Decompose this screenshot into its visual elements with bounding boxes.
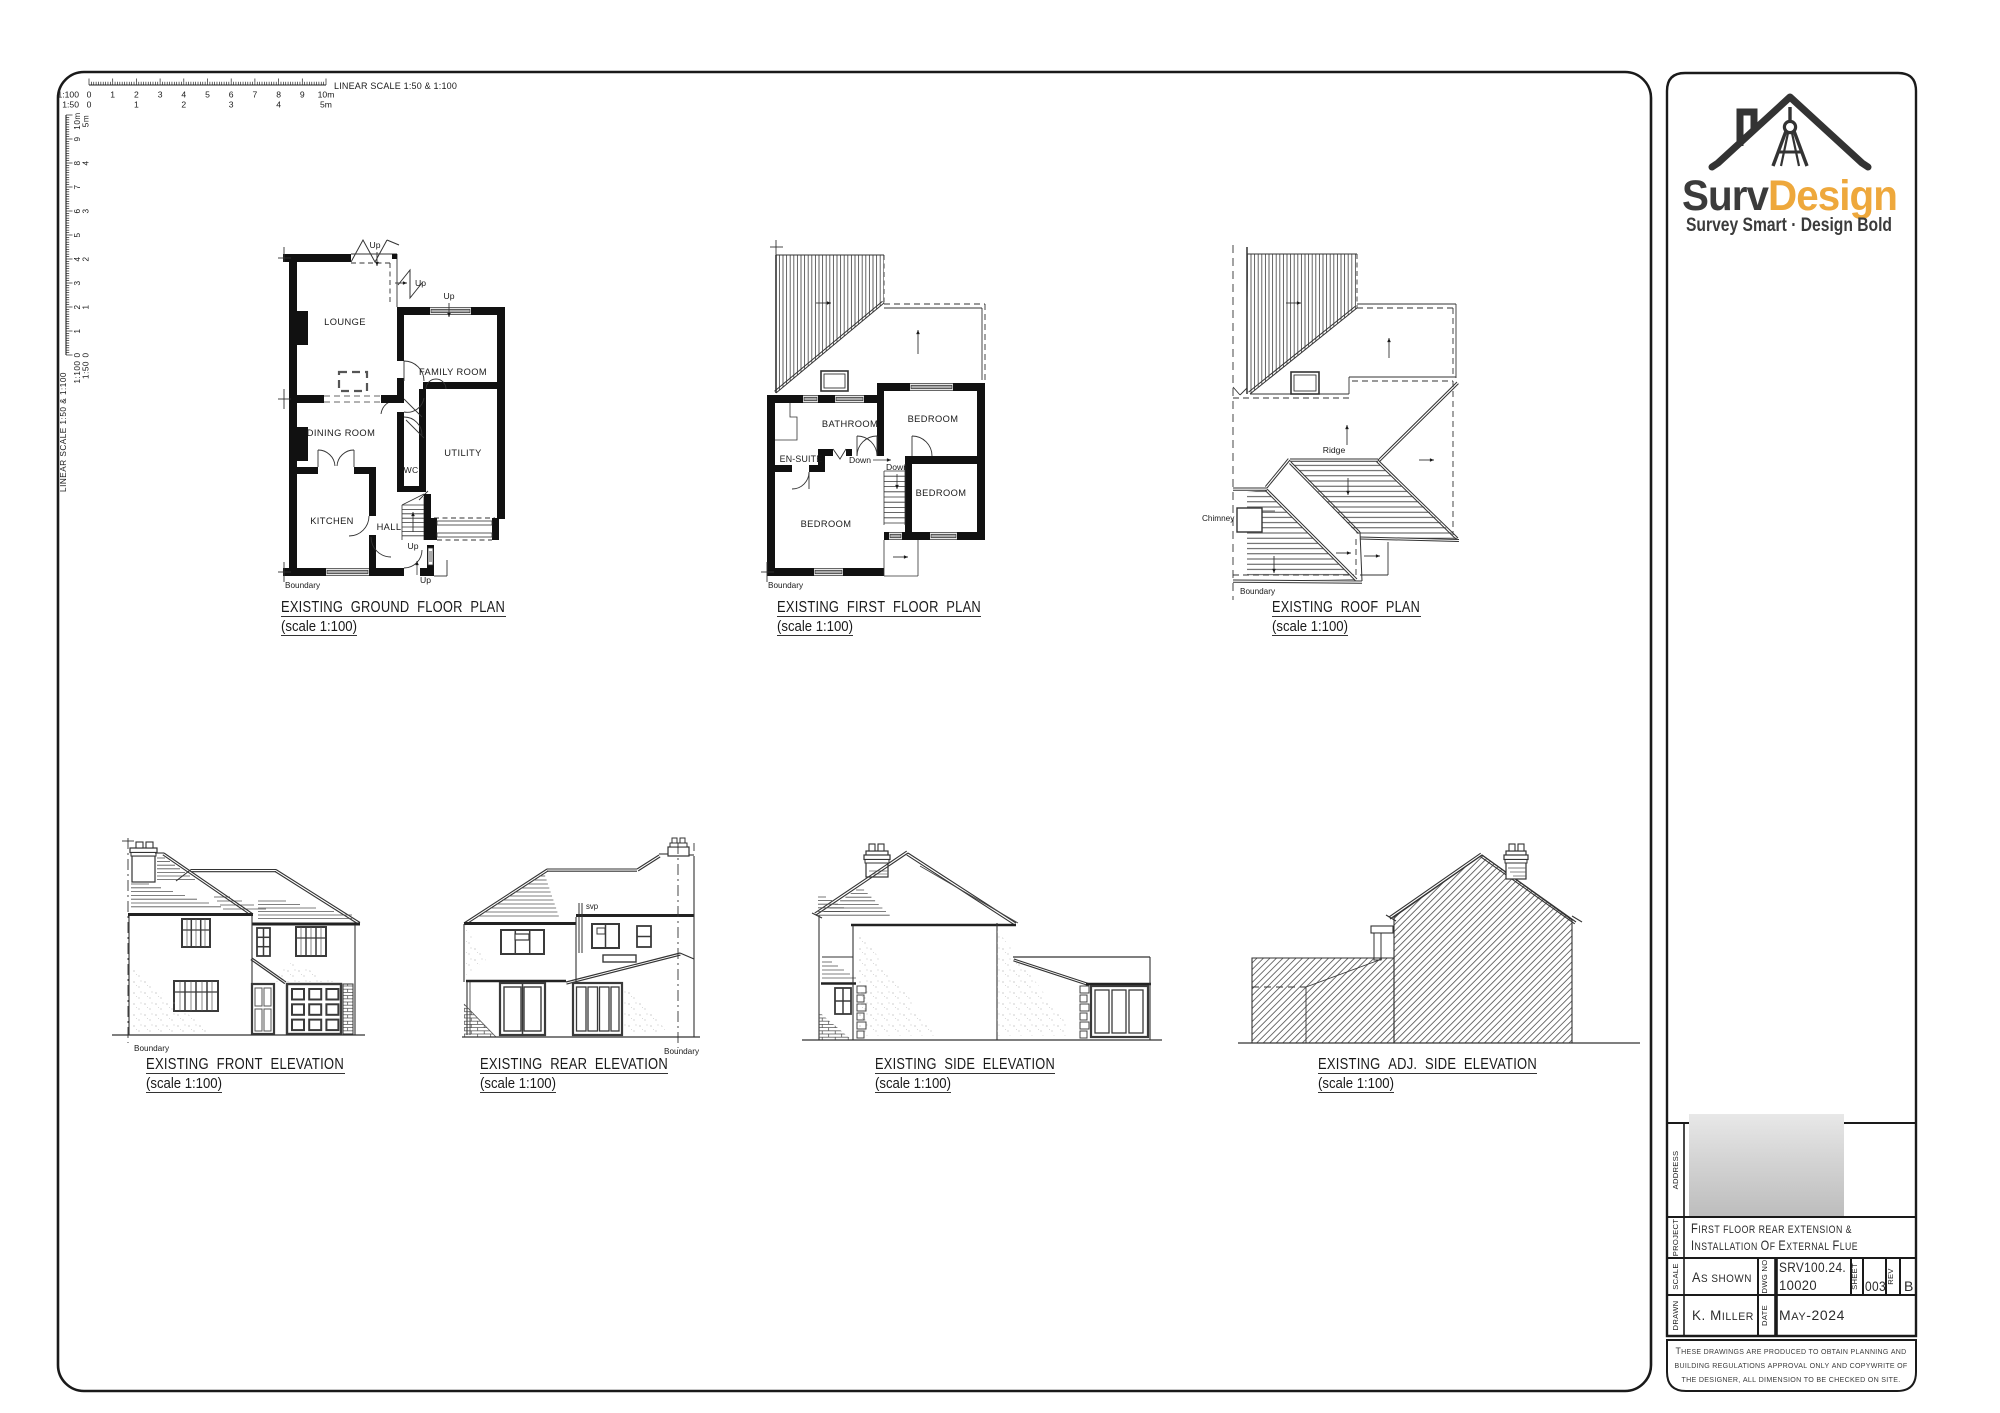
- svg-text:10m: 10m: [318, 90, 335, 100]
- svg-text:svp: svp: [586, 902, 599, 911]
- svg-text:1: 1: [73, 328, 82, 333]
- svg-text:DRAWN: DRAWN: [1671, 1301, 1680, 1331]
- svg-text:DWG NO: DWG NO: [1760, 1260, 1769, 1294]
- svg-text:Boundary: Boundary: [1240, 587, 1276, 596]
- svg-text:WC: WC: [404, 465, 419, 475]
- svg-text:2: 2: [134, 90, 139, 100]
- svg-text:Ridge: Ridge: [1323, 445, 1346, 455]
- svg-text:MAY-2024: MAY-2024: [1779, 1307, 1845, 1323]
- svg-text:Down: Down: [849, 455, 871, 465]
- svg-text:5: 5: [205, 90, 210, 100]
- svg-text:EXISTING ROOF PLAN: EXISTING ROOF PLAN: [1272, 599, 1420, 616]
- svg-text:EXISTING ADJ. SIDE ELEVATIO: EXISTING ADJ. SIDE ELEVATION: [1318, 1056, 1537, 1073]
- svg-text:SCALE: SCALE: [1671, 1263, 1680, 1289]
- svg-text:4: 4: [276, 100, 281, 110]
- svg-text:LINEAR SCALE 1:50 & 1:100: LINEAR SCALE 1:50 & 1:100: [59, 372, 68, 492]
- svg-text:THE DESIGNER, ALL DIMENSION TO: THE DESIGNER, ALL DIMENSION TO BE CHECKE…: [1682, 1375, 1901, 1384]
- svg-text:FAMILY ROOM: FAMILY ROOM: [419, 367, 487, 377]
- svg-text:4: 4: [82, 160, 91, 165]
- svg-text:3: 3: [158, 90, 163, 100]
- svg-text:Boundary: Boundary: [134, 1044, 170, 1053]
- svg-text:(scale 1:100): (scale 1:100): [1272, 618, 1348, 635]
- svg-text:1: 1: [134, 100, 139, 110]
- svg-text:BEDROOM: BEDROOM: [908, 414, 959, 424]
- svg-text:BATHROOM: BATHROOM: [822, 419, 878, 429]
- svg-text:Boundary: Boundary: [768, 581, 804, 590]
- svg-text:Up: Up: [415, 278, 426, 288]
- svg-text:DINING ROOM: DINING ROOM: [307, 428, 375, 438]
- svg-text:PROJECT: PROJECT: [1671, 1219, 1680, 1257]
- svg-text:8: 8: [276, 90, 281, 100]
- svg-text:10020: 10020: [1779, 1277, 1817, 1293]
- svg-text:Up: Up: [408, 541, 419, 551]
- svg-text:3: 3: [229, 100, 234, 110]
- svg-text:HALL: HALL: [377, 522, 402, 532]
- svg-text:B: B: [1904, 1278, 1914, 1294]
- svg-text:7: 7: [253, 90, 258, 100]
- svg-text:9: 9: [300, 90, 305, 100]
- svg-text:0: 0: [87, 90, 92, 100]
- svg-text:(scale 1:100): (scale 1:100): [875, 1075, 951, 1092]
- svg-text:4: 4: [181, 90, 186, 100]
- svg-text:Boundary: Boundary: [285, 581, 321, 590]
- svg-text:3: 3: [73, 280, 82, 285]
- svg-text:Up: Up: [420, 575, 431, 585]
- svg-text:1:100: 1:100: [57, 90, 79, 100]
- svg-text:Boundary: Boundary: [664, 1047, 700, 1056]
- svg-text:1:50: 1:50: [82, 361, 91, 379]
- svg-text:BUILDING REGULATIONS APPROVAL: BUILDING REGULATIONS APPROVAL ONLY AND C…: [1675, 1361, 1908, 1370]
- svg-text:1: 1: [110, 90, 115, 100]
- svg-text:EXISTING FRONT ELEVATION: EXISTING FRONT ELEVATION: [146, 1056, 344, 1073]
- svg-text:2: 2: [82, 256, 91, 261]
- svg-text:BEDROOM: BEDROOM: [916, 488, 967, 498]
- svg-text:0: 0: [87, 100, 92, 110]
- svg-text:UTILITY: UTILITY: [444, 448, 481, 458]
- svg-text:ADDRESS: ADDRESS: [1671, 1151, 1680, 1190]
- svg-text:EN-SUITE: EN-SUITE: [780, 454, 823, 464]
- svg-text:LOUNGE: LOUNGE: [324, 317, 366, 327]
- svg-text:2: 2: [181, 100, 186, 110]
- svg-text:(scale 1:100): (scale 1:100): [777, 618, 853, 635]
- svg-text:(scale 1:100): (scale 1:100): [146, 1075, 222, 1092]
- svg-text:EXISTING REAR ELEVATION: EXISTING REAR ELEVATION: [480, 1056, 668, 1073]
- svg-text:Chimney: Chimney: [1202, 514, 1235, 523]
- svg-text:9: 9: [73, 136, 82, 141]
- svg-text:6: 6: [229, 90, 234, 100]
- svg-text:5m: 5m: [320, 100, 332, 110]
- svg-text:(scale 1:100): (scale 1:100): [281, 618, 357, 635]
- svg-text:BEDROOM: BEDROOM: [801, 519, 852, 529]
- svg-text:SurvDesign: SurvDesign: [1682, 172, 1897, 220]
- svg-text:5m: 5m: [82, 115, 91, 127]
- svg-text:1: 1: [82, 304, 91, 309]
- svg-text:THESE DRAWINGS ARE PRODUCED TO: THESE DRAWINGS ARE PRODUCED TO OBTAIN PL…: [1676, 1346, 1907, 1356]
- svg-text:5: 5: [73, 232, 82, 237]
- svg-text:Survey Smart · Design Bold: Survey Smart · Design Bold: [1686, 214, 1892, 236]
- svg-text:EXISTING GROUND FLOOR PLAN: EXISTING GROUND FLOOR PLAN: [281, 599, 505, 616]
- svg-text:KITCHEN: KITCHEN: [310, 516, 354, 526]
- svg-text:1:50: 1:50: [62, 100, 79, 110]
- svg-text:003: 003: [1865, 1278, 1886, 1294]
- svg-text:7: 7: [73, 184, 82, 189]
- svg-text:0: 0: [82, 352, 91, 357]
- svg-text:Down: Down: [886, 462, 908, 472]
- svg-text:Up: Up: [444, 291, 455, 301]
- svg-text:SRV100.24.: SRV100.24.: [1779, 1259, 1846, 1275]
- svg-text:3: 3: [82, 208, 91, 213]
- svg-text:REV: REV: [1886, 1268, 1895, 1285]
- svg-text:EXISTING FIRST FLOOR PLAN: EXISTING FIRST FLOOR PLAN: [777, 599, 981, 616]
- svg-text:EXISTING SIDE ELEVATION: EXISTING SIDE ELEVATION: [875, 1056, 1055, 1073]
- svg-text:SHEET: SHEET: [1850, 1263, 1859, 1290]
- svg-text:(scale 1:100): (scale 1:100): [1318, 1075, 1394, 1092]
- svg-text:(scale 1:100): (scale 1:100): [480, 1075, 556, 1092]
- svg-text:Up: Up: [370, 240, 381, 250]
- svg-text:LINEAR SCALE 1:50 & 1:100: LINEAR SCALE 1:50 & 1:100: [334, 81, 457, 91]
- svg-text:DATE: DATE: [1760, 1305, 1769, 1326]
